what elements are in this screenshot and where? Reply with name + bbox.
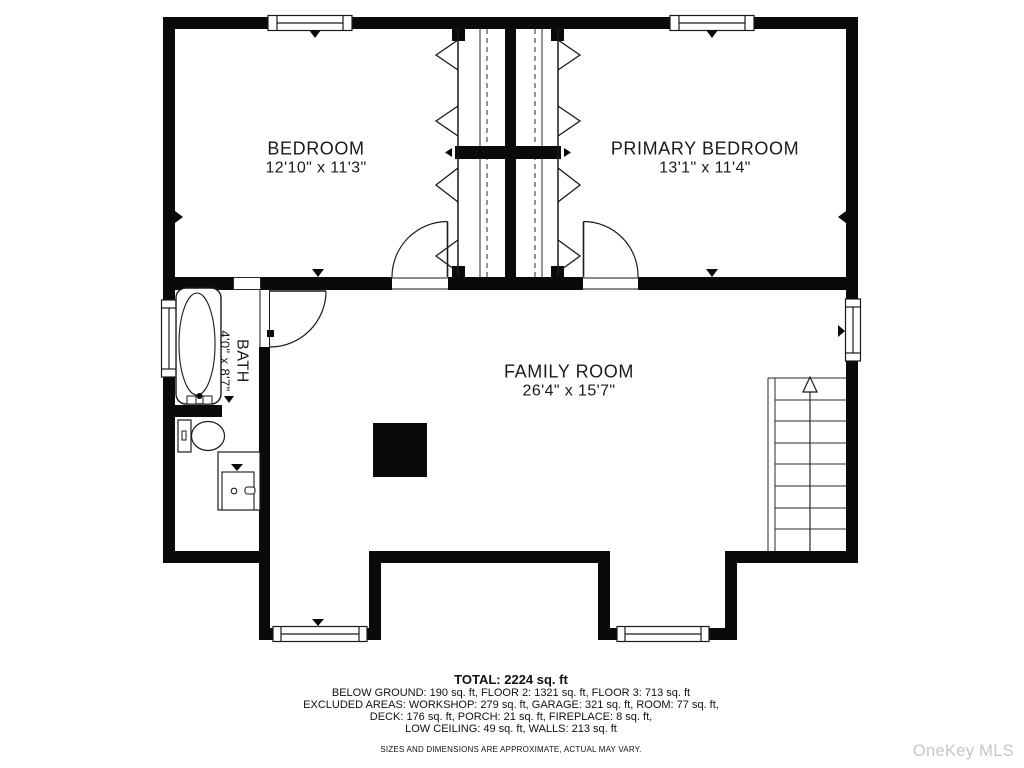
room-label-bedroom: BEDROOM 12'10" x 11'3" [265,139,366,178]
fireplace-chimney [373,423,427,477]
room-dimensions: 13'1" x 11'4" [611,159,799,178]
room-name: FAMILY ROOM [504,362,634,382]
room-name: BATH [233,330,252,391]
door-bath [270,291,326,347]
room-dimensions: 12'10" x 11'3" [265,159,366,178]
summary-line: EXCLUDED AREAS: WORKSHOP: 279 sq. ft, GA… [303,699,719,711]
bifold-chevrons-right [558,40,580,272]
disclaimer-text: SIZES AND DIMENSIONS ARE APPROXIMATE, AC… [303,745,719,754]
staircase [768,377,846,551]
room-name: PRIMARY BEDROOM [611,139,799,159]
total-area: TOTAL: 2224 sq. ft [303,672,719,687]
stairs-up-arrow [803,377,817,392]
wall-niche [234,278,261,290]
tub-faucet [197,393,203,399]
toilet [178,420,225,452]
summary-line: BELOW GROUND: 190 sq. ft, FLOOR 2: 1321 … [303,687,719,699]
summary-line: DECK: 176 sq. ft, PORCH: 21 sq. ft, FIRE… [303,711,719,723]
window-bedroom [268,16,352,31]
room-name: BEDROOM [265,139,366,159]
window-bath [162,300,177,377]
room-dimensions: 26'4" x 15'7" [504,382,634,401]
bathtub [176,288,221,404]
vanity-sink [218,452,260,510]
watermark-onekey-mls: OneKey MLS [913,742,1014,761]
room-label-family-room: FAMILY ROOM 26'4" x 15'7" [504,362,634,401]
door-primary-bedroom [584,222,639,278]
room-dimensions: 4'0" x 8'7" [217,330,233,391]
room-label-primary-bedroom: PRIMARY BEDROOM 13'1" x 11'4" [611,139,799,178]
door-bedroom [392,222,448,278]
room-label-bath: BATH 4'0" x 8'7" [217,330,252,391]
window-primary-bedroom [670,16,754,31]
floorplan-page: BEDROOM 12'10" x 11'3" PRIMARY BEDROOM 1… [0,0,1024,768]
window-dormer-left [273,627,367,642]
area-summary: TOTAL: 2224 sq. ft BELOW GROUND: 190 sq.… [303,672,719,754]
window-dormer-right [617,627,709,642]
window-family-right [846,299,861,361]
summary-line: LOW CEILING: 49 sq. ft, WALLS: 213 sq. f… [303,723,719,735]
